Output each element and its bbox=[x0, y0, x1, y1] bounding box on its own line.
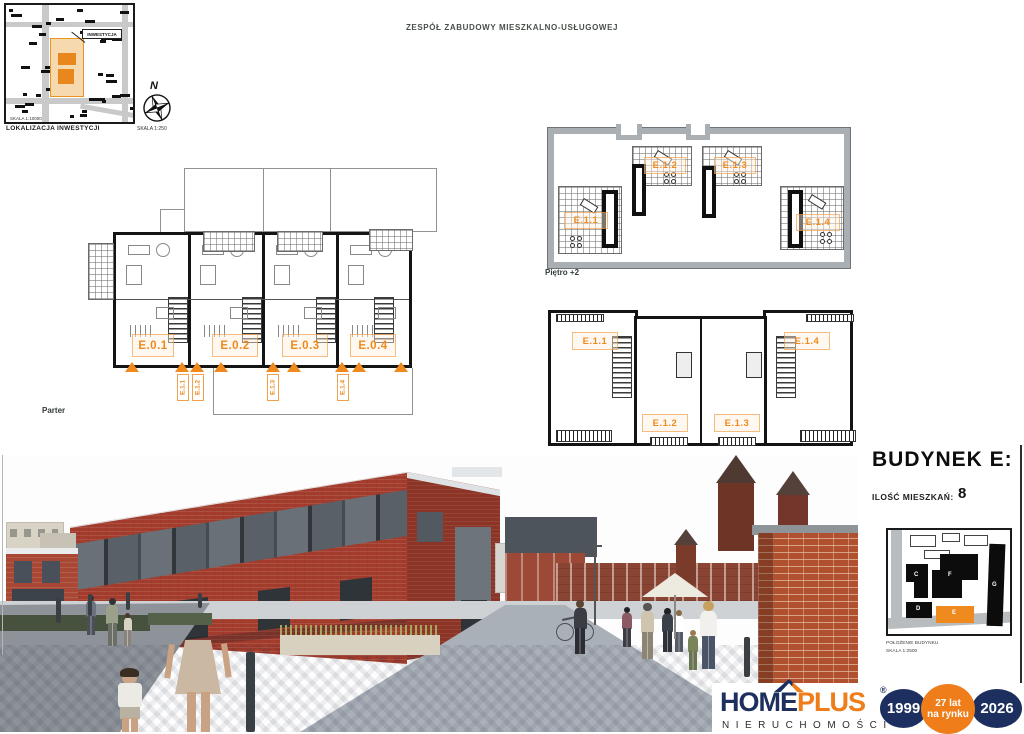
entrance-label: E.1.1 bbox=[177, 374, 189, 401]
unit-label: E.0.2 bbox=[212, 334, 258, 357]
person-figure bbox=[104, 598, 120, 646]
lamp-arm bbox=[588, 545, 602, 547]
homeplus-logo: HOMEPLUS ® NIERUCHOMOŚCI 1999 2026 27 la… bbox=[712, 683, 1024, 734]
unit-label: E.1.2 bbox=[642, 414, 688, 432]
furniture bbox=[274, 265, 290, 285]
minimap-building-outline bbox=[942, 533, 960, 542]
upper-window-band bbox=[70, 489, 415, 591]
minimap-letter-f: F bbox=[948, 572, 952, 578]
minimap-letter-g: G bbox=[992, 582, 997, 588]
furniture bbox=[156, 243, 170, 257]
person-legs bbox=[623, 628, 631, 647]
entrance-arrow-icon bbox=[125, 362, 139, 372]
tower-spire bbox=[716, 455, 756, 483]
person-torso bbox=[688, 636, 698, 652]
map-block bbox=[82, 110, 87, 113]
badge-line-1: 27 lat bbox=[935, 698, 961, 709]
map-block bbox=[100, 40, 106, 43]
person-head bbox=[576, 600, 584, 608]
logo-plus: PLUS bbox=[797, 687, 865, 717]
bollard bbox=[744, 637, 750, 677]
person-torso bbox=[641, 611, 654, 633]
badge-year-end: 2026 bbox=[972, 689, 1022, 728]
location-map: INWESTYCJA SKALA 1:10000 bbox=[4, 3, 135, 124]
map-block bbox=[120, 94, 130, 97]
tower-spire bbox=[776, 471, 810, 495]
person-figure bbox=[571, 600, 589, 654]
map-block bbox=[80, 114, 87, 117]
parter-balcony bbox=[369, 229, 413, 251]
leg bbox=[201, 692, 210, 732]
unit-label: E.1.1 bbox=[564, 212, 608, 229]
map-block bbox=[120, 11, 129, 14]
map-inner-scale: SKALA 1:10000 bbox=[10, 116, 42, 121]
minimap-letter-c: C bbox=[914, 572, 918, 578]
projection-line bbox=[263, 168, 264, 232]
person-torso bbox=[622, 613, 632, 629]
long-hair bbox=[183, 598, 213, 662]
unit-label: E.1.3 bbox=[714, 157, 756, 174]
map-block bbox=[46, 22, 51, 25]
person-legs bbox=[675, 632, 683, 652]
terrace-furniture-item bbox=[577, 243, 582, 248]
person-legs bbox=[689, 651, 697, 670]
woman-foreground bbox=[163, 598, 233, 732]
furniture bbox=[128, 245, 150, 255]
boy-foreground bbox=[112, 668, 150, 732]
unit-label: E.1.4 bbox=[796, 214, 840, 231]
person-legs bbox=[87, 616, 95, 635]
projection-line bbox=[330, 168, 331, 232]
entrance-label: E.1.2 bbox=[192, 374, 204, 401]
person-figure bbox=[697, 601, 720, 669]
map-block bbox=[39, 33, 46, 36]
modern-building bbox=[505, 517, 597, 557]
map-block bbox=[21, 66, 30, 69]
investment-building bbox=[58, 53, 76, 65]
person-torso bbox=[106, 605, 117, 624]
map-block bbox=[23, 93, 27, 96]
minimap-letter-e: E bbox=[952, 610, 956, 616]
person-torso bbox=[700, 611, 716, 638]
building-notch bbox=[906, 582, 914, 598]
gable-window bbox=[417, 512, 443, 542]
investment-building bbox=[58, 69, 74, 84]
bollard bbox=[88, 594, 92, 616]
person-legs bbox=[663, 631, 671, 652]
balcony bbox=[806, 314, 854, 322]
map-block bbox=[15, 105, 25, 108]
unit-label: E.0.3 bbox=[282, 334, 328, 357]
person-legs bbox=[108, 623, 117, 646]
map-block bbox=[106, 80, 117, 83]
balcony bbox=[718, 437, 756, 446]
map-block bbox=[25, 103, 34, 106]
person-torso bbox=[124, 618, 132, 631]
terrace-furniture-item bbox=[664, 179, 669, 184]
furniture bbox=[156, 307, 174, 319]
roof-pergola bbox=[452, 467, 502, 477]
page-title: ZESPÓŁ ZABUDOWY MIESZKALNO-USŁUGOWEJ bbox=[0, 23, 1024, 32]
furniture bbox=[304, 307, 322, 319]
balcony bbox=[650, 437, 688, 446]
lamp-post bbox=[594, 545, 596, 625]
badge-anniversary: 27 lat na rynku bbox=[921, 684, 975, 734]
furniture bbox=[378, 307, 396, 319]
unit-label: E.0.1 bbox=[132, 334, 174, 357]
furniture bbox=[200, 265, 216, 285]
plan-sheet: ZESPÓŁ ZABUDOWY MIESZKALNO-USŁUGOWEJ INW… bbox=[0, 0, 1024, 734]
balcony bbox=[556, 314, 604, 322]
hair bbox=[120, 668, 139, 677]
titleblock-rule bbox=[1020, 445, 1022, 688]
leg bbox=[187, 692, 196, 732]
map-block bbox=[85, 20, 95, 23]
compass-n-letter: N bbox=[150, 80, 158, 92]
apartments-label: ILOŚĆ MIESZKAŃ: bbox=[872, 492, 954, 502]
projection-step bbox=[160, 209, 184, 232]
person-legs bbox=[702, 636, 715, 669]
terrace-furniture-item bbox=[820, 239, 825, 244]
leg bbox=[131, 718, 138, 732]
map-block bbox=[22, 110, 28, 113]
umbrella-pole bbox=[674, 595, 676, 639]
parter-label: Parter bbox=[42, 406, 65, 415]
person-legs bbox=[642, 632, 653, 659]
north-compass-icon: N bbox=[142, 82, 174, 124]
map-block bbox=[56, 18, 64, 21]
person-legs bbox=[124, 630, 130, 646]
map-block bbox=[36, 94, 41, 97]
apartments-count: 8 bbox=[958, 485, 966, 502]
terrace-furniture-item bbox=[577, 236, 582, 241]
entrance-arrow-icon bbox=[175, 362, 189, 372]
map-block bbox=[130, 107, 135, 110]
terrace-furniture-item bbox=[827, 232, 832, 237]
logo-subtitle: NIERUCHOMOŚCI bbox=[722, 720, 893, 731]
logo-wordmark: HOMEPLUS bbox=[720, 687, 865, 718]
parter-balcony bbox=[277, 231, 323, 252]
badge-year-start: 1999 bbox=[880, 689, 927, 728]
registered-mark: ® bbox=[880, 685, 887, 695]
balcony bbox=[556, 430, 612, 442]
map-block bbox=[9, 9, 13, 12]
minimap-building-outline bbox=[964, 535, 988, 546]
minimap-road bbox=[891, 530, 902, 620]
location-map-caption: LOKALIZACJA INWESTYCJI bbox=[6, 125, 100, 132]
furniture bbox=[348, 265, 364, 285]
map-block bbox=[77, 9, 83, 12]
person-legs bbox=[575, 628, 585, 654]
building-title: BUDYNEK E: bbox=[872, 448, 1013, 472]
map-block bbox=[89, 98, 100, 101]
furniture bbox=[230, 307, 248, 319]
site-minimap: C F D E G bbox=[886, 528, 1012, 636]
wall-shade bbox=[758, 533, 774, 693]
person-figure bbox=[122, 613, 133, 646]
bollard bbox=[56, 597, 61, 623]
minimap-caption-2: SKALA 1:2500 bbox=[886, 649, 917, 654]
person-figure bbox=[638, 603, 657, 659]
map-block bbox=[32, 25, 42, 28]
map-block bbox=[106, 74, 114, 77]
inwestycja-label: INWESTYCJA bbox=[82, 29, 122, 39]
bathroom-core bbox=[746, 352, 762, 378]
unit-divider bbox=[700, 319, 702, 443]
minimap-letter-d: D bbox=[916, 606, 920, 612]
furniture bbox=[126, 265, 142, 285]
terrace-furniture-item bbox=[827, 239, 832, 244]
shirt bbox=[118, 683, 142, 708]
map-block bbox=[70, 115, 74, 118]
unit-label: E.1.4 bbox=[784, 332, 830, 350]
photo-edge-line bbox=[2, 455, 3, 655]
person-head bbox=[703, 601, 713, 611]
minimap-caption-1: POŁOŻENIE BUDYNKU bbox=[886, 641, 938, 646]
map-block bbox=[29, 42, 37, 45]
map-block bbox=[98, 73, 103, 76]
unit-label: E.1.1 bbox=[572, 332, 618, 350]
balcony bbox=[800, 430, 856, 442]
roof-notch bbox=[616, 124, 642, 140]
compass-scale: SKALA 1:250 bbox=[137, 126, 167, 132]
minimap-building-outline bbox=[910, 535, 936, 547]
logo-home: HOME bbox=[720, 687, 797, 717]
bathroom-core bbox=[676, 352, 692, 378]
unit-label: E.1.2 bbox=[644, 157, 686, 174]
person-torso bbox=[574, 608, 587, 630]
arm bbox=[164, 644, 175, 679]
unit-label: E.0.4 bbox=[350, 334, 396, 357]
minimap-building-f bbox=[932, 570, 962, 598]
leg bbox=[122, 718, 129, 732]
parter-projection-outline bbox=[184, 168, 437, 232]
terrace-furniture-item bbox=[570, 236, 575, 241]
investment-parcel-highlight bbox=[50, 38, 84, 97]
map-block bbox=[11, 14, 22, 17]
terrace-furniture-item bbox=[734, 179, 739, 184]
compass-rose bbox=[142, 93, 172, 123]
entrance-arrow-icon bbox=[190, 362, 204, 372]
terrace-furniture-item bbox=[820, 232, 825, 237]
terrace-furniture-item bbox=[741, 179, 746, 184]
unit-label: E.1.3 bbox=[714, 414, 760, 432]
plot-outline bbox=[213, 368, 413, 415]
parter-terrace bbox=[88, 243, 114, 300]
arm bbox=[221, 643, 232, 678]
roof-plants bbox=[355, 455, 425, 470]
roof-notch bbox=[686, 124, 710, 140]
pietro2-label: Piętro +2 bbox=[545, 268, 579, 277]
bollard bbox=[246, 652, 255, 732]
terrace-furniture-item bbox=[671, 179, 676, 184]
badge-line-2: na rynku bbox=[927, 709, 969, 720]
person-figure bbox=[686, 630, 700, 670]
map-block bbox=[112, 95, 121, 98]
gable-panel bbox=[455, 527, 491, 605]
map-block bbox=[102, 100, 106, 103]
bollard bbox=[126, 592, 130, 610]
parter-balcony bbox=[203, 231, 255, 252]
terrace-furniture-item bbox=[570, 243, 575, 248]
person-figure bbox=[620, 607, 634, 647]
planter-wall bbox=[280, 635, 440, 655]
